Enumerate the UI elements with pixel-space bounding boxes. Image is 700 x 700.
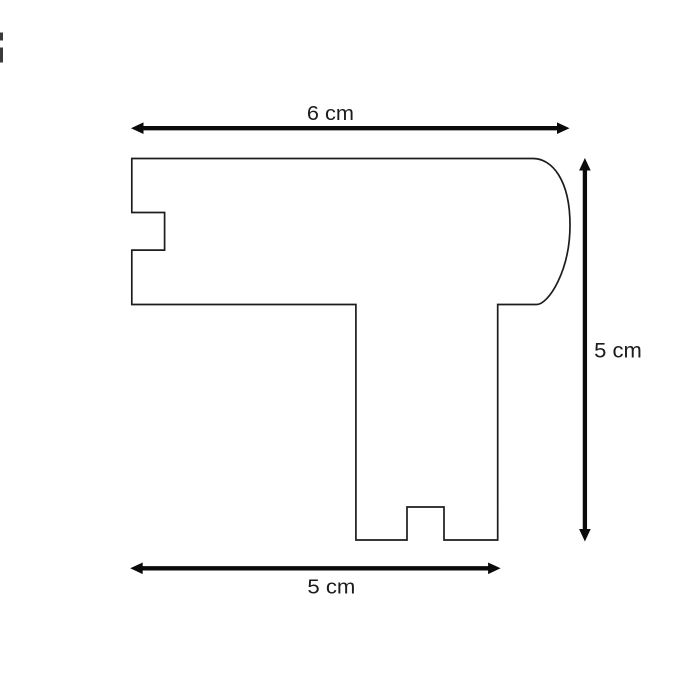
svg-text:5 cm: 5 cm [594, 340, 642, 363]
svg-text:5 cm: 5 cm [307, 577, 355, 599]
svg-text:6 cm: 6 cm [307, 103, 354, 125]
